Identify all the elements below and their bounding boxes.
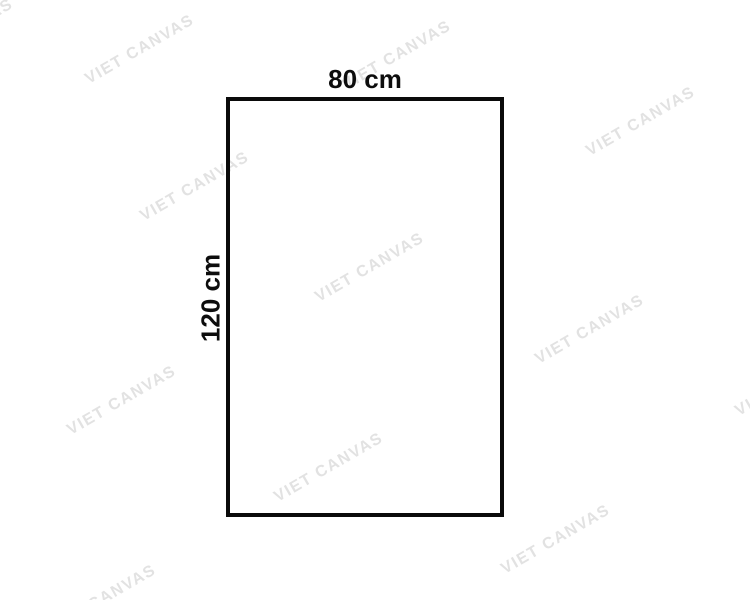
- watermark-text: VIET CANVAS: [498, 501, 613, 578]
- watermark-text: VIET CANVAS: [0, 0, 17, 73]
- watermark-text: VIET CANVAS: [532, 291, 647, 368]
- watermark-text: VIET CANVAS: [44, 561, 159, 600]
- watermark-text: VIET CANVAS: [64, 362, 179, 439]
- watermark-text: VIET CANVAS: [583, 83, 698, 160]
- width-dimension-label: 80 cm: [226, 66, 504, 92]
- watermark-text: VIET CANVAS: [82, 11, 197, 88]
- product-dimension-image: VIET CANVASVIET CANVASVIET CANVASVIET CA…: [0, 0, 750, 600]
- canvas-outline-rectangle: [226, 97, 504, 517]
- height-dimension-label: 120 cm: [196, 254, 227, 342]
- watermark-text: VIET CANVAS: [732, 343, 750, 420]
